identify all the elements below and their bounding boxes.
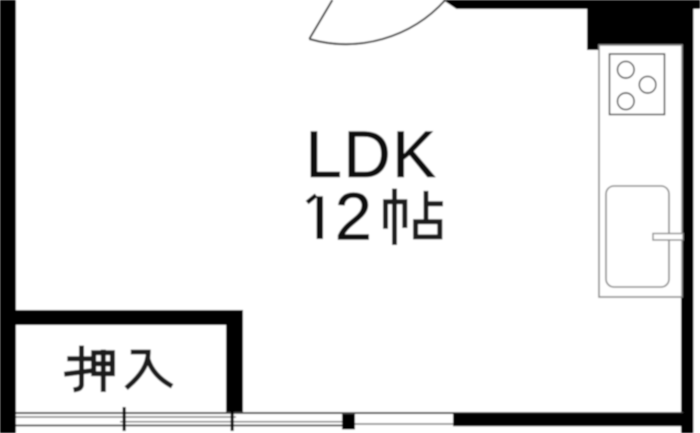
svg-text:2: 2 [335, 180, 372, 255]
